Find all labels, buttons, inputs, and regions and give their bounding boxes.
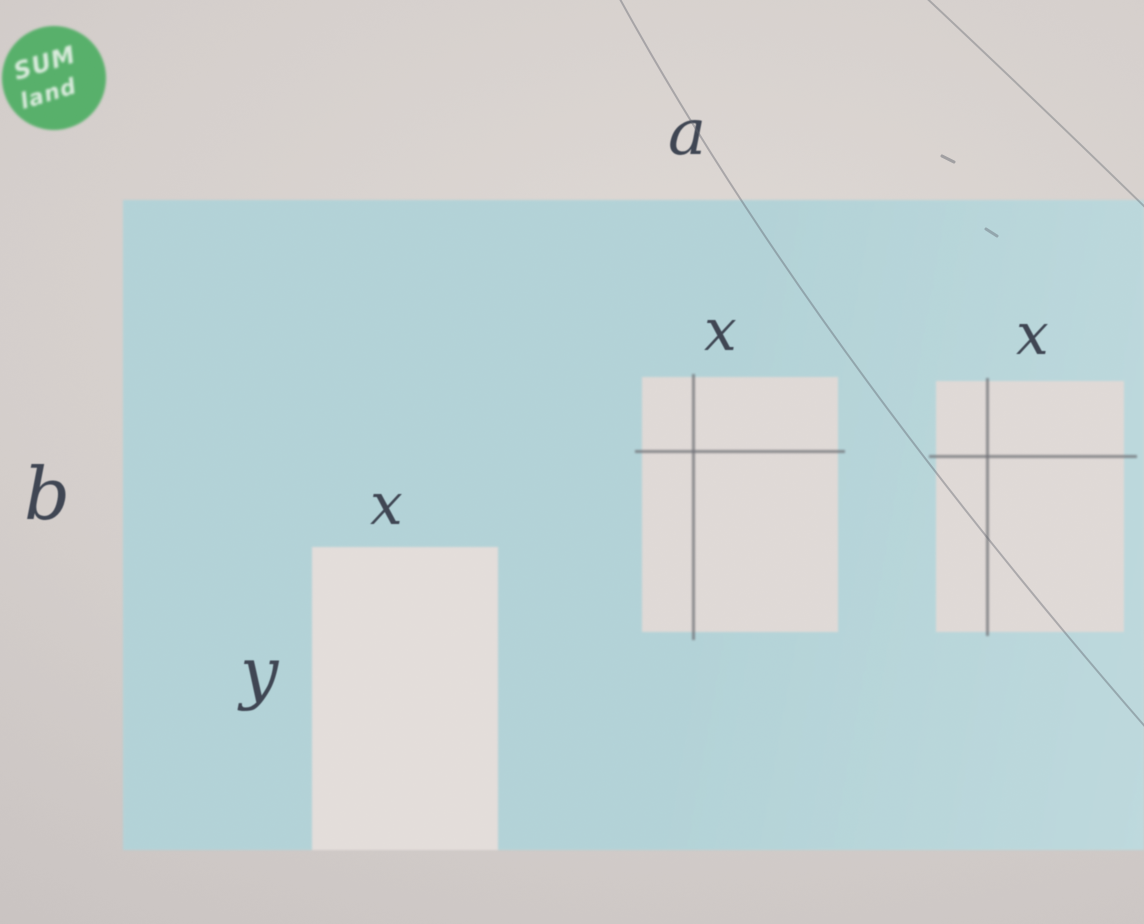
pen-speck-1 <box>942 156 954 162</box>
label-window1-width-x: x <box>704 296 737 364</box>
label-wall-width-a: a <box>668 96 706 170</box>
window-right-vertical-pane-line <box>986 378 989 636</box>
wall-rectangle <box>123 200 1144 850</box>
label-door-width-x: x <box>370 470 403 538</box>
window-cutout-right <box>936 381 1124 632</box>
window-cutout-left <box>642 377 838 632</box>
label-door-height-y: y <box>240 634 278 713</box>
label-window2-width-x: x <box>1016 300 1049 368</box>
pen-stroke-corner-diagonal <box>918 0 1144 212</box>
door-cutout <box>312 547 498 850</box>
label-wall-height-b: b <box>24 452 70 536</box>
window-left-vertical-pane-line <box>692 374 695 640</box>
window-right-horizontal-pane-line <box>929 455 1137 458</box>
window-left-horizontal-pane-line <box>635 450 845 453</box>
watermark-logo-badge: SUM land <box>2 26 106 130</box>
photographed-textbook-diagram: SUM land a b x y x x <box>0 0 1144 924</box>
